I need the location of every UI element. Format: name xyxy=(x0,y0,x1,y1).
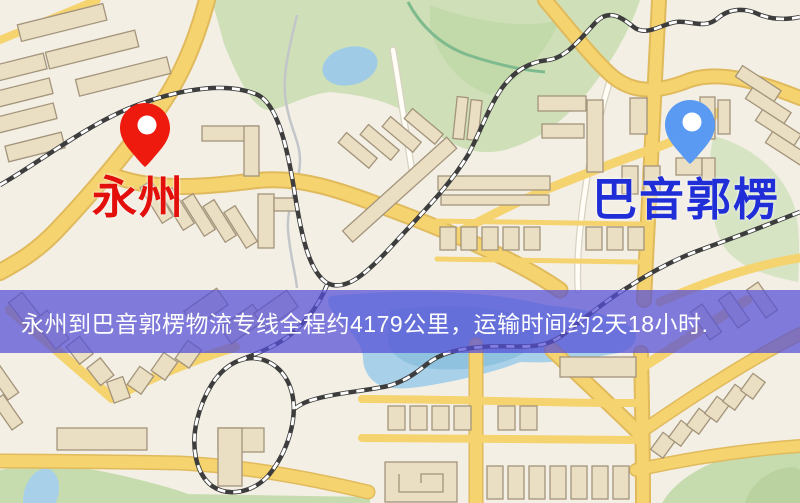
route-summary-text: 永州到巴音郭楞物流专线全程约4179公里，运输时间约2天18小时. xyxy=(0,305,708,339)
route-summary-banner: 永州到巴音郭楞物流专线全程约4179公里，运输时间约2天18小时. xyxy=(0,290,800,353)
map-pin-icon xyxy=(663,99,717,165)
origin-pin-hole xyxy=(138,116,157,135)
destination-pin-shape xyxy=(665,100,715,164)
map-pin-icon xyxy=(118,102,172,168)
origin-label: 永州 xyxy=(92,176,184,221)
origin-pin[interactable] xyxy=(118,102,172,168)
base-map xyxy=(0,0,800,503)
destination-pin-hole xyxy=(683,113,702,132)
destination-label: 巴音郭楞 xyxy=(592,178,780,223)
origin-pin-shape xyxy=(120,103,170,167)
destination-pin[interactable] xyxy=(663,99,717,165)
map-canvas[interactable]: 永州 巴音郭楞 永州到巴音郭楞物流专线全程约4179公里，运输时间约2天18小时… xyxy=(0,0,800,503)
